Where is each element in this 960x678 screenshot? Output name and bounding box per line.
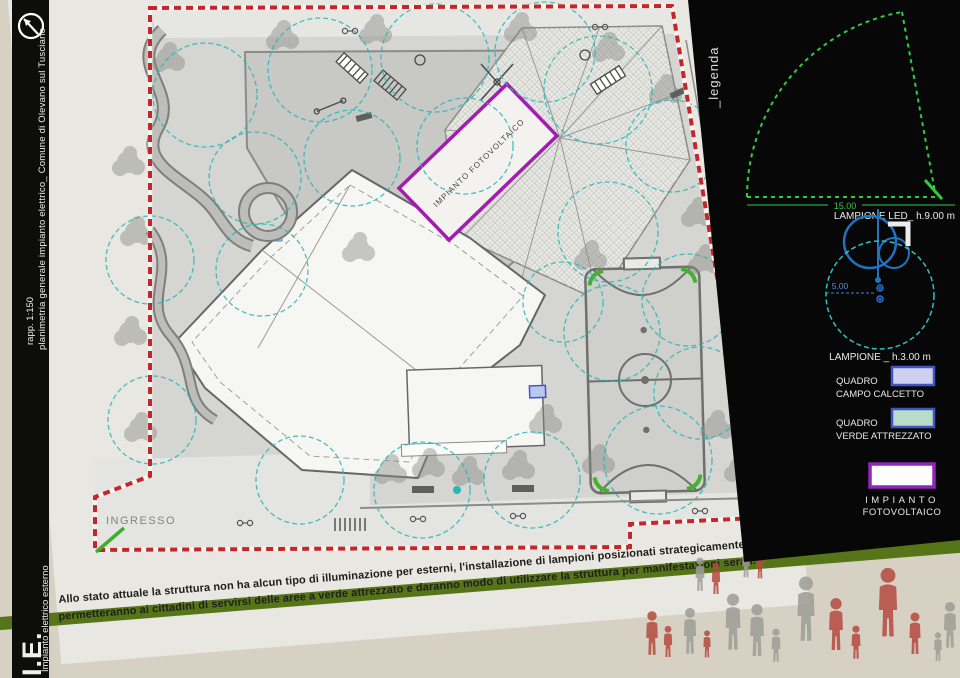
title-block-sidebar: planimetria generale impianto elettrico_… — [12, 0, 49, 678]
drawing-scale: rapp. 1:150 — [25, 297, 36, 345]
radius-label-5: 5.00 — [832, 281, 849, 291]
swatch-verde — [892, 409, 934, 427]
svg-text:FOTOVOLTAICO: FOTOVOLTAICO — [863, 507, 942, 518]
lamp-short-icon — [877, 285, 883, 302]
section-code: I.E. — [17, 631, 48, 676]
svg-text:IMPIANTO: IMPIANTO — [865, 495, 939, 506]
project-title: planimetria generale impianto elettrico_… — [37, 28, 48, 350]
svg-text:CAMPO CALCETTO: CAMPO CALCETTO — [836, 389, 924, 400]
legend-title: _legenda — [706, 47, 721, 110]
lamp-tall-label: LAMPIONE LED_ h.9.00 m — [834, 211, 955, 222]
radius-label-15: 15.00 — [834, 201, 857, 211]
svg-text:VERDE ATTREZZATO: VERDE ATTREZZATO — [836, 431, 932, 442]
lamp-short-label: LAMPIONE _ h.3.00 m — [829, 352, 931, 363]
svg-text:QUADRO: QUADRO — [836, 418, 878, 429]
poster: IMPIANTO FOTOVOLTAICO ING — [0, 0, 960, 678]
legend-impianto-fv: IMPIANTO FOTOVOLTAICO — [863, 464, 942, 518]
swatch-fotovoltaico — [870, 464, 934, 487]
legend-quadro-calcetto: QUADRO CAMPO CALCETTO — [836, 367, 934, 400]
swatch-calcetto — [892, 367, 934, 385]
legend-quadro-verde: QUADRO VERDE ATTREZZATO — [836, 409, 934, 442]
svg-text:QUADRO: QUADRO — [836, 376, 878, 387]
legend-lamp-tall: 15.00 LAMPIONE LED_ h.9.00 m — [747, 12, 955, 283]
